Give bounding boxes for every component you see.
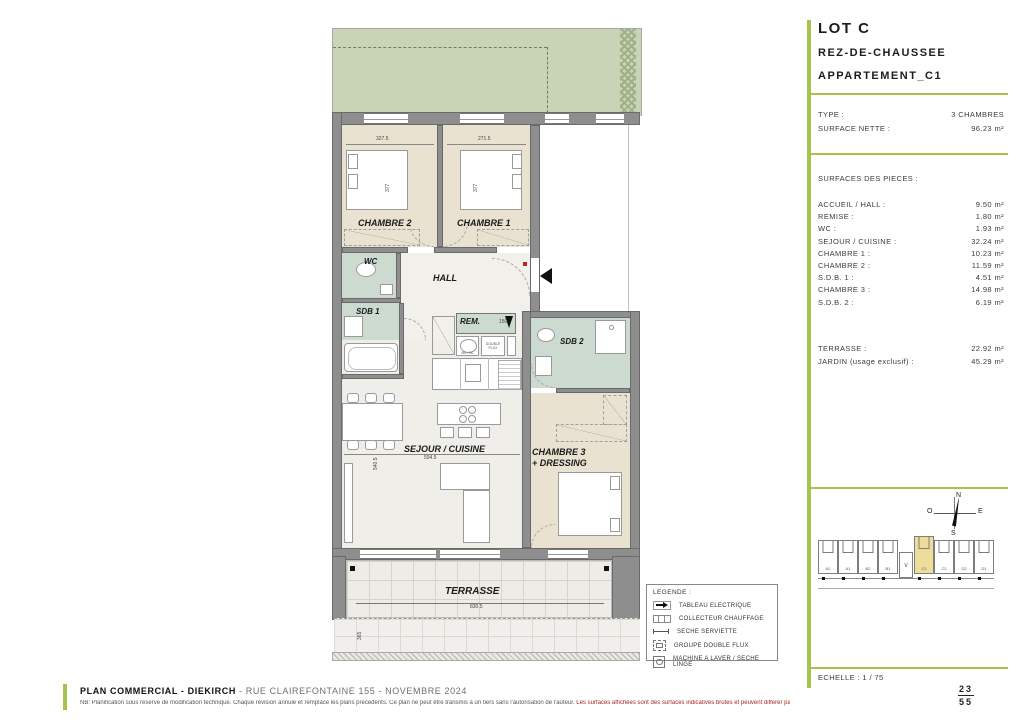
outdoor-row: TERRASSE :22.92 m² bbox=[818, 344, 1004, 357]
entrance-door-gap bbox=[531, 258, 539, 292]
legend-item: TABLEAU ELECTRIQUE bbox=[653, 601, 771, 610]
room-row: SEJOUR / CUISINE :32.24 m² bbox=[818, 237, 1004, 249]
terrasse-bottom-band bbox=[332, 652, 640, 661]
rooms-table: ACCUEIL / HALL :9.50 m² REMISE :1.80 m² … bbox=[818, 200, 1004, 310]
lot-title: LOT C bbox=[818, 20, 871, 37]
chambre3-pillow-2 bbox=[610, 518, 620, 532]
page-total: 55 bbox=[958, 696, 974, 707]
kitchen-duct bbox=[507, 336, 516, 356]
room-label: REMISE : bbox=[818, 212, 854, 224]
disclaimer-text-highlighted: Les surfaces affichées sont des surfaces… bbox=[576, 700, 790, 706]
chambre2-wardrobe bbox=[344, 229, 420, 246]
sdb2-shower-drain bbox=[609, 325, 614, 330]
room-label: CHAMBRE 2 : bbox=[818, 261, 870, 273]
island-stool-1 bbox=[440, 427, 454, 438]
cooktop-burner-1 bbox=[459, 406, 467, 414]
chambre1-label: CHAMBRE 1 bbox=[457, 218, 511, 228]
chambre1-pillow-1 bbox=[512, 154, 522, 169]
legend-item: MACHINE A LAVER / SECHE LINGE bbox=[653, 656, 771, 668]
compass: N E S O bbox=[925, 492, 985, 542]
room-value: 11.59 m² bbox=[972, 261, 1004, 273]
footer-title: PLAN COMMERCIAL - DIEKIRCH - RUE CLAIREF… bbox=[80, 686, 467, 696]
sdb2-sink bbox=[535, 356, 552, 376]
sofa-top bbox=[440, 463, 490, 490]
groupe-double-flux-icon bbox=[653, 640, 666, 651]
compass-o: O bbox=[927, 508, 932, 515]
sdb2-label: SDB 2 bbox=[560, 337, 584, 346]
room-row: ACCUEIL / HALL :9.50 m² bbox=[818, 200, 1004, 212]
type-value: 3 CHAMBRES bbox=[951, 110, 1004, 119]
sdb2-toilet bbox=[537, 328, 555, 342]
dim-terrasse-w: 830.5 bbox=[470, 605, 483, 610]
legend-item-label: SECHE SERVIETTE bbox=[677, 629, 737, 635]
panel-accent-bar bbox=[807, 20, 811, 688]
page-current: 23 bbox=[958, 684, 974, 696]
building-minimap: A2 A1 B2 B1 ∨ C1 C2 D2 D1 bbox=[818, 536, 994, 594]
room-row: WC :1.93 m² bbox=[818, 224, 1004, 236]
room-value: 1.93 m² bbox=[976, 224, 1004, 236]
room-row: CHAMBRE 3 :14.98 m² bbox=[818, 285, 1004, 297]
surface-nette-row: SURFACE NETTE : 96.23 m² bbox=[818, 124, 1004, 133]
compass-e: E bbox=[978, 508, 983, 515]
minimap-unit-d2: D2 bbox=[954, 540, 974, 574]
tableau-electrique-icon bbox=[653, 601, 671, 610]
kitchen-dishwasher bbox=[498, 360, 521, 390]
cooktop-burner-3 bbox=[459, 415, 467, 423]
wc-label: WC bbox=[364, 257, 377, 266]
dining-chair-4 bbox=[347, 440, 359, 450]
wall-sejour-chambre3 bbox=[522, 311, 531, 548]
room-value: 14.98 m² bbox=[971, 285, 1004, 297]
terrasse-post-right bbox=[604, 566, 609, 571]
window-chambre2 bbox=[364, 113, 408, 124]
dim-sejour-w: 594.5 bbox=[424, 456, 437, 461]
footer-title-bold: PLAN COMMERCIAL - DIEKIRCH bbox=[80, 686, 236, 696]
dim-line-chambre1 bbox=[447, 144, 526, 145]
window-corridor-2 bbox=[596, 113, 624, 124]
panel-divider-2 bbox=[810, 153, 1008, 155]
legend-item-label: COLLECTEUR CHAUFFAGE bbox=[679, 616, 764, 622]
chambre1-wardrobe bbox=[477, 229, 529, 246]
minimap-unit-c1-highlighted: C1 bbox=[914, 536, 934, 574]
room-label: S.D.B. 1 : bbox=[818, 273, 854, 285]
chambre3-wardrobe-band bbox=[556, 424, 627, 442]
dining-chair-6 bbox=[383, 440, 395, 450]
legend-item: SECHE SERVIETTE bbox=[653, 628, 771, 635]
chambre3-label-line1: CHAMBRE 3 bbox=[532, 447, 586, 457]
terrasse-lower-area bbox=[334, 618, 640, 653]
disclaimer-text: NB: Planification sous réserve de modifi… bbox=[80, 700, 576, 706]
room-label: S.D.B. 2 : bbox=[818, 298, 854, 310]
surface-nette-label: SURFACE NETTE : bbox=[818, 124, 890, 133]
footer-title-rest: - RUE CLAIREFONTAINE 155 - NOVEMBRE 2024 bbox=[236, 686, 467, 696]
chambre3-pillow-1 bbox=[610, 476, 620, 490]
legend-title: LEGENDE : bbox=[653, 589, 771, 596]
room-value: 32.24 m² bbox=[971, 237, 1004, 249]
room-value: 4.51 m² bbox=[976, 273, 1004, 285]
dining-chair-2 bbox=[365, 393, 377, 403]
outdoor-value: 45.29 m² bbox=[971, 357, 1004, 370]
apartment-title: APPARTEMENT_C1 bbox=[818, 70, 942, 82]
dim-rem-w: 150 bbox=[499, 320, 507, 325]
dim-chambre1-w: 271.5 bbox=[478, 137, 491, 142]
room-value: 9.50 m² bbox=[976, 200, 1004, 212]
cooktop-burner-2 bbox=[468, 406, 476, 414]
panel-divider-1 bbox=[810, 93, 1008, 95]
legend-item-label: GROUPE DOUBLE FLUX bbox=[674, 643, 749, 649]
wall-left bbox=[332, 112, 342, 560]
room-label: ACCUEIL / HALL : bbox=[818, 200, 886, 212]
jardin-boundary-dashed-h bbox=[333, 47, 547, 48]
minimap-unit-d1: D1 bbox=[974, 540, 994, 574]
corridor-outline bbox=[628, 125, 629, 311]
kitchen-counter-divider-2 bbox=[488, 358, 489, 390]
chambre2-label: CHAMBRE 2 bbox=[358, 218, 412, 228]
wc-sink bbox=[380, 284, 393, 295]
chambre3-label-line2: + DRESSING bbox=[532, 458, 587, 468]
wall-sdb2-chambre3 bbox=[556, 388, 630, 393]
room-row: S.D.B. 1 :4.51 m² bbox=[818, 273, 1004, 285]
jardin-boundary-dashed-v bbox=[547, 47, 548, 113]
chambre2-pillow-2 bbox=[348, 174, 358, 189]
dining-chair-5 bbox=[365, 440, 377, 450]
cooktop-burner-4 bbox=[468, 415, 476, 423]
panel-divider-3 bbox=[810, 487, 1008, 489]
kitchen-counter-divider-1 bbox=[460, 358, 461, 390]
dim-chambre1-h: 377 bbox=[474, 184, 479, 192]
dim-chambre2-w: 327.5 bbox=[376, 137, 389, 142]
room-row: CHAMBRE 2 :11.59 m² bbox=[818, 261, 1004, 273]
wall-bedrooms-bottom-2 bbox=[434, 247, 497, 253]
footer-accent-bar bbox=[63, 684, 67, 710]
double-flux-label: DOUBLE FLUX bbox=[483, 342, 503, 350]
glass-door-sejour-1 bbox=[360, 549, 436, 559]
room-label: WC : bbox=[818, 224, 836, 236]
wall-right-block bbox=[630, 311, 640, 560]
room-value: 1.80 m² bbox=[976, 212, 1004, 224]
jardin-area bbox=[332, 28, 642, 116]
footer-disclaimer: NB: Planification sous réserve de modifi… bbox=[80, 700, 790, 707]
kitchen-tall-cabinet bbox=[432, 316, 455, 355]
legend-box: LEGENDE : TABLEAU ELECTRIQUE COLLECTEUR … bbox=[646, 584, 778, 661]
room-row: S.D.B. 2 :6.19 m² bbox=[818, 298, 1004, 310]
sdb1-bathtub-inner bbox=[348, 347, 396, 370]
collecteur-chauffage-icon bbox=[653, 615, 671, 623]
glass-door-chambre3 bbox=[548, 549, 588, 559]
dining-chair-3 bbox=[383, 393, 395, 403]
type-row: TYPE : 3 CHAMBRES bbox=[818, 110, 1004, 119]
plan-commercial-page: ML / SL DOUBLE FLUX bbox=[0, 0, 1024, 724]
minimap-baseline-2 bbox=[818, 588, 994, 589]
glass-door-sejour-2 bbox=[440, 549, 500, 559]
dim-sejour-h: 540.5 bbox=[374, 457, 379, 470]
outdoor-row: JARDIN (usage exclusif) :45.29 m² bbox=[818, 357, 1004, 370]
legend-item: COLLECTEUR CHAUFFAGE bbox=[653, 615, 771, 623]
page-indicator: 23 55 bbox=[958, 684, 974, 707]
washing-machine-label: ML / SL bbox=[457, 351, 478, 355]
kitchen-sink bbox=[465, 364, 481, 382]
tv-cabinet bbox=[344, 463, 353, 543]
dim-line-chambre2 bbox=[346, 144, 434, 145]
room-label: CHAMBRE 3 : bbox=[818, 285, 870, 297]
minimap-unit-a2: A2 bbox=[818, 540, 838, 574]
window-corridor-1 bbox=[545, 113, 569, 124]
room-value: 10.23 m² bbox=[971, 249, 1004, 261]
legend-item-label: MACHINE A LAVER / SECHE LINGE bbox=[673, 656, 771, 668]
minimap-stairwell: ∨ bbox=[899, 552, 913, 578]
dim-terrasse-h: 365 bbox=[358, 632, 363, 640]
terrasse-wall-right bbox=[612, 556, 640, 620]
legend-item-label: TABLEAU ELECTRIQUE bbox=[679, 603, 751, 609]
hall-label: HALL bbox=[433, 273, 457, 283]
outdoor-label: JARDIN (usage exclusif) : bbox=[818, 357, 914, 370]
sofa-side bbox=[463, 490, 490, 543]
minimap-unit-b2: B2 bbox=[858, 540, 878, 574]
entrance-arrow-icon bbox=[540, 268, 552, 284]
room-label: SEJOUR / CUISINE : bbox=[818, 237, 896, 249]
jardin-hatch-strip bbox=[620, 29, 636, 114]
room-label: CHAMBRE 1 : bbox=[818, 249, 870, 261]
legend-item: GROUPE DOUBLE FLUX bbox=[653, 640, 771, 651]
machine-a-laver-icon bbox=[653, 656, 665, 668]
minimap-unit-a1: A1 bbox=[838, 540, 858, 574]
terrasse-wall-left bbox=[332, 556, 346, 620]
wall-sdb2-top bbox=[522, 311, 640, 318]
double-flux-unit: DOUBLE FLUX bbox=[481, 336, 505, 356]
seche-serviette-icon bbox=[653, 628, 669, 635]
washing-machine: ML / SL bbox=[456, 336, 479, 356]
chambre2-pillow-1 bbox=[348, 154, 358, 169]
wall-sdb1-bottom bbox=[342, 374, 404, 379]
wall-wc-bottom bbox=[342, 298, 401, 303]
surface-nette-value: 96.23 m² bbox=[971, 124, 1004, 133]
outdoor-table: TERRASSE :22.92 m² JARDIN (usage exclusi… bbox=[818, 344, 1004, 370]
type-label: TYPE : bbox=[818, 110, 844, 119]
terrasse-post-left bbox=[350, 566, 355, 571]
minimap-unit-b1: B1 bbox=[878, 540, 898, 574]
scale-label: ECHELLE : 1 / 75 bbox=[818, 673, 884, 682]
floor-title: REZ-DE-CHAUSSEE bbox=[818, 47, 946, 59]
wall-wc-right bbox=[396, 253, 401, 298]
chambre1-pillow-2 bbox=[512, 174, 522, 189]
window-chambre1 bbox=[460, 113, 504, 124]
sdb1-sink bbox=[344, 316, 363, 337]
outdoor-value: 22.92 m² bbox=[971, 344, 1004, 357]
sdb1-label: SDB 1 bbox=[356, 307, 380, 316]
panel-divider-4 bbox=[810, 667, 1008, 669]
room-row: REMISE :1.80 m² bbox=[818, 212, 1004, 224]
dim-chambre2-h: 377 bbox=[386, 184, 391, 192]
room-row: CHAMBRE 1 :10.23 m² bbox=[818, 249, 1004, 261]
terrasse-label: TERRASSE bbox=[445, 586, 499, 597]
entrance-red-marker bbox=[523, 262, 527, 266]
outdoor-label: TERRASSE : bbox=[818, 344, 867, 357]
chambre3-wardrobe-right bbox=[603, 395, 627, 425]
rooms-header: SURFACES DES PIECES : bbox=[818, 174, 918, 183]
dining-table bbox=[342, 403, 403, 441]
minimap-unit-c2: C2 bbox=[934, 540, 954, 574]
room-value: 6.19 m² bbox=[976, 298, 1004, 310]
rem-label: REM. bbox=[460, 317, 480, 326]
island-stool-3 bbox=[476, 427, 490, 438]
island-stool-2 bbox=[458, 427, 472, 438]
dining-chair-1 bbox=[347, 393, 359, 403]
sejour-label: SEJOUR / CUISINE bbox=[404, 444, 485, 454]
